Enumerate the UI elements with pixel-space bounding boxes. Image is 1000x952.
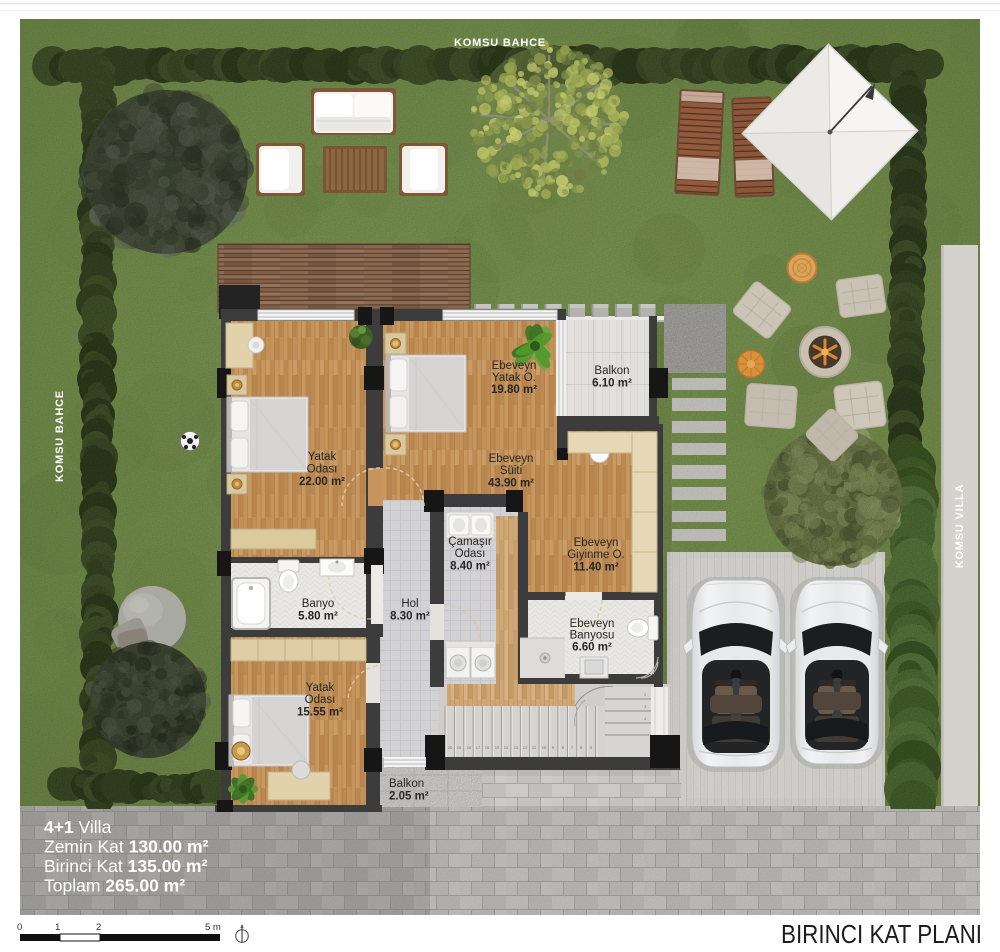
svg-text:15.55 m²: 15.55 m² — [297, 707, 343, 719]
svg-text:Balkon: Balkon — [389, 778, 424, 790]
svg-text:BIRINCI KAT PLANI: BIRINCI KAT PLANI — [781, 919, 982, 949]
svg-text:Banyosu: Banyosu — [570, 630, 615, 642]
svg-text:Odası: Odası — [307, 464, 338, 476]
svg-text:Banyo: Banyo — [302, 598, 335, 610]
svg-text:Odası: Odası — [305, 694, 336, 706]
svg-text:Yatak O.: Yatak O. — [492, 372, 536, 384]
svg-text:Ebeveyn: Ebeveyn — [489, 453, 534, 465]
svg-text:10: 10 — [542, 745, 547, 750]
svg-text:Ebeveyn: Ebeveyn — [570, 618, 615, 630]
svg-text:KOMSU BAHCE: KOMSU BAHCE — [454, 37, 546, 49]
svg-text:43.90 m²: 43.90 m² — [488, 478, 534, 490]
svg-text:Süiti: Süiti — [500, 465, 522, 477]
svg-text:14: 14 — [504, 745, 509, 750]
svg-text:2.05 m²: 2.05 m² — [389, 791, 429, 803]
svg-text:Balkon: Balkon — [594, 365, 629, 377]
svg-text:11.40 m²: 11.40 m² — [573, 562, 619, 574]
svg-text:Ebeveyn: Ebeveyn — [492, 360, 537, 372]
svg-text:Ebeveyn: Ebeveyn — [574, 537, 619, 549]
svg-text:13: 13 — [514, 745, 519, 750]
svg-text:Giyinme O.: Giyinme O. — [567, 549, 625, 561]
svg-text:22.00 m²: 22.00 m² — [299, 476, 345, 488]
svg-text:0: 0 — [17, 922, 22, 933]
svg-text:18: 18 — [467, 745, 472, 750]
svg-text:Toplam 265.00 m²: Toplam 265.00 m² — [44, 876, 185, 896]
svg-text:Yatak: Yatak — [308, 451, 337, 463]
svg-text:Hol: Hol — [401, 598, 418, 610]
svg-text:KOMSU VILLA: KOMSU VILLA — [954, 484, 966, 569]
svg-text:Odası: Odası — [455, 548, 486, 560]
svg-text:16: 16 — [485, 745, 490, 750]
svg-text:19: 19 — [457, 745, 462, 750]
svg-text:Çamaşır: Çamaşır — [448, 536, 492, 548]
svg-text:1: 1 — [55, 922, 60, 933]
svg-text:Birinci Kat 135.00 m²: Birinci Kat 135.00 m² — [44, 856, 208, 876]
svg-text:Yatak: Yatak — [306, 682, 335, 694]
svg-text:8.30 m²: 8.30 m² — [390, 611, 430, 623]
svg-text:2: 2 — [96, 922, 101, 933]
svg-text:8.40 m²: 8.40 m² — [450, 561, 490, 573]
svg-text:5 m: 5 m — [205, 922, 221, 933]
svg-text:Zemin Kat 130.00 m²: Zemin Kat 130.00 m² — [44, 837, 209, 857]
svg-text:KOMSU BAHCE: KOMSU BAHCE — [54, 390, 66, 482]
svg-text:15: 15 — [495, 745, 500, 750]
svg-text:5.80 m²: 5.80 m² — [298, 611, 338, 623]
svg-text:6.60 m²: 6.60 m² — [572, 642, 612, 654]
svg-text:19.80 m²: 19.80 m² — [491, 384, 537, 396]
svg-text:4+1 Villa: 4+1 Villa — [44, 817, 112, 837]
svg-text:6.10 m²: 6.10 m² — [592, 378, 632, 390]
svg-text:20: 20 — [448, 745, 453, 750]
svg-text:12: 12 — [523, 745, 528, 750]
svg-text:17: 17 — [476, 745, 481, 750]
